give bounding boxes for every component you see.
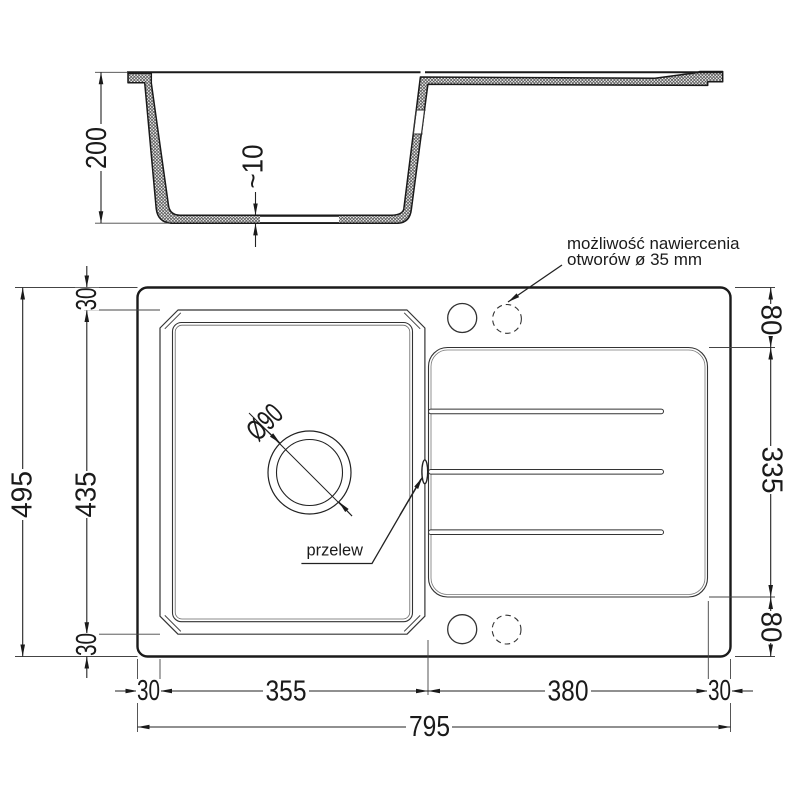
svg-text:795: 795 (409, 711, 450, 743)
svg-text:~10: ~10 (238, 145, 270, 189)
svg-text:80: 80 (755, 612, 787, 643)
svg-text:30: 30 (137, 675, 160, 707)
svg-text:30: 30 (71, 633, 103, 656)
svg-text:380: 380 (548, 676, 589, 708)
svg-text:200: 200 (81, 127, 113, 169)
svg-text:30: 30 (708, 675, 731, 707)
svg-text:355: 355 (266, 676, 307, 708)
svg-text:335: 335 (756, 447, 788, 494)
svg-text:przelew: przelew (307, 541, 364, 560)
svg-text:80: 80 (755, 305, 787, 336)
svg-text:otworów ø 35 mm: otworów ø 35 mm (567, 250, 702, 269)
svg-text:495: 495 (7, 471, 39, 518)
svg-text:30: 30 (71, 288, 103, 311)
svg-text:435: 435 (71, 472, 103, 518)
